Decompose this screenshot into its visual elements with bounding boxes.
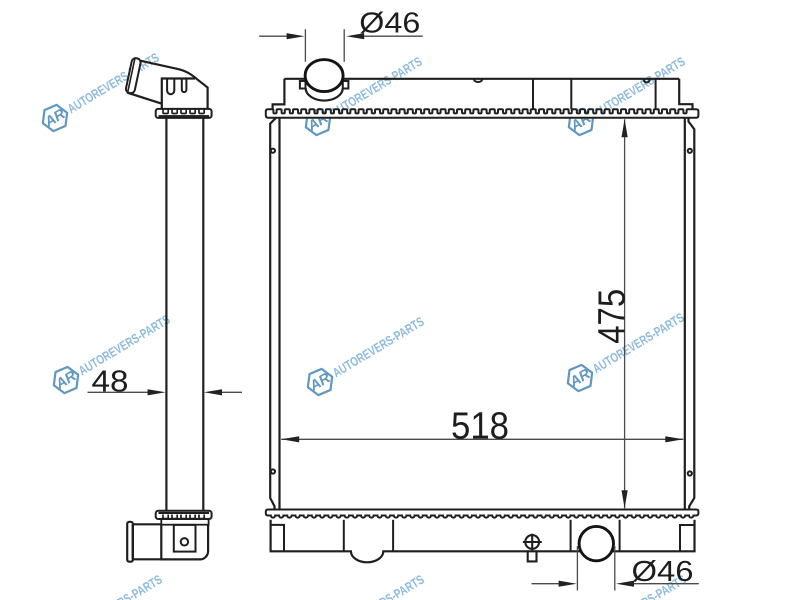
svg-text:Ø46: Ø46 xyxy=(359,7,420,39)
svg-text:48: 48 xyxy=(92,364,129,399)
svg-text:Ø46: Ø46 xyxy=(632,556,694,588)
svg-text:475: 475 xyxy=(591,289,633,344)
svg-text:518: 518 xyxy=(451,405,509,447)
